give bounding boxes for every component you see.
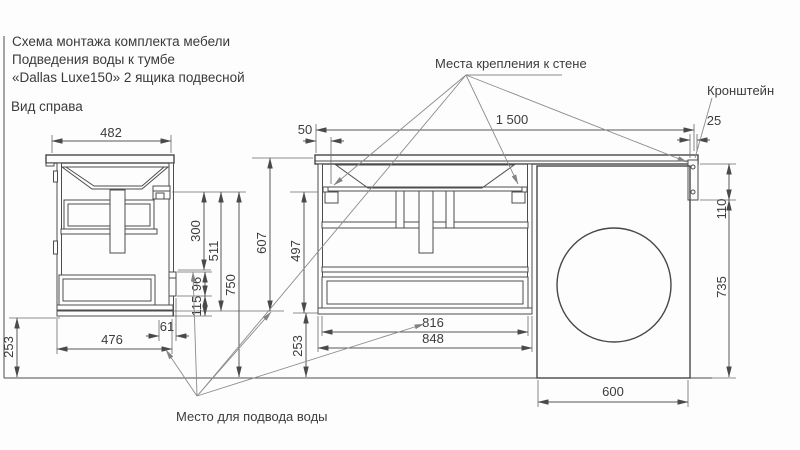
side-countertop — [46, 155, 174, 163]
dimensions-front: 1 500 50 25 816 848 — [298, 112, 721, 352]
front-divider — [322, 267, 528, 272]
title-line-1: Схема монтажа комплекта мебели — [12, 33, 245, 51]
siphon-plate-left — [396, 191, 404, 228]
dim-50: 50 — [298, 122, 312, 137]
side-drawer-notch-top — [54, 171, 58, 182]
dim-1500: 1 500 — [496, 112, 529, 127]
dim-607: 607 — [254, 232, 269, 254]
title-block: Схема монтажа комплекта мебели Подведени… — [12, 33, 245, 87]
dim-253-side: 253 — [1, 336, 16, 358]
side-view — [46, 155, 176, 316]
dimensions-middle: 607 497 253 — [252, 158, 318, 377]
side-drawer-notch-bottom — [54, 241, 58, 254]
dim-25: 25 — [707, 113, 721, 128]
view-label: Вид справа — [11, 99, 83, 114]
mount-bracket-right — [512, 187, 527, 203]
dimensions-right: 110 735 600 — [538, 164, 736, 407]
dim-816: 816 — [422, 315, 444, 330]
side-bottom-slab-1 — [57, 305, 173, 310]
wall-mounts-label: Места крепления к стене — [435, 56, 587, 71]
front-bottom-band — [318, 308, 532, 314]
title-line-2: Подведения воды к тумбе — [12, 51, 245, 69]
side-rail — [61, 229, 157, 234]
front-drain-pipe — [419, 191, 433, 253]
front-lower-drawer-inner — [327, 281, 523, 304]
side-wall-bracket-bottom — [169, 272, 176, 296]
siphon-plate-right — [446, 191, 454, 228]
dim-476: 476 — [101, 332, 123, 347]
title-line-3: «Dallas Luxe150» 2 ящика подвесной — [12, 69, 245, 87]
washer-door — [557, 228, 671, 342]
dim-253-front: 253 — [290, 335, 305, 357]
bracket-label: Кронштейн — [707, 83, 774, 98]
drawing-canvas: 482 300 511 750 96 115 61 476 — [0, 0, 800, 450]
side-countertop-lip — [46, 163, 54, 166]
side-upper-drawer-inner — [68, 204, 150, 226]
washing-machine — [537, 166, 690, 378]
dim-482: 482 — [100, 125, 122, 140]
dim-600: 600 — [602, 384, 624, 399]
dim-497: 497 — [288, 240, 303, 262]
water-supply-label: Место для подвода воды — [176, 409, 328, 424]
front-basin — [336, 165, 514, 188]
dim-750: 750 — [223, 274, 238, 296]
side-bottom-slab-2 — [57, 311, 173, 316]
dim-110: 110 — [714, 199, 729, 220]
side-lower-drawer-inner — [63, 279, 151, 301]
mount-bracket-left — [323, 187, 338, 203]
side-drain-pipe — [110, 190, 125, 253]
dim-300: 300 — [188, 220, 203, 242]
dim-735: 735 — [714, 276, 729, 298]
dim-115: 115 — [189, 296, 204, 317]
dim-96: 96 — [189, 277, 204, 291]
dim-511: 511 — [206, 241, 221, 262]
dim-848: 848 — [422, 331, 444, 346]
washer-body — [537, 166, 690, 378]
